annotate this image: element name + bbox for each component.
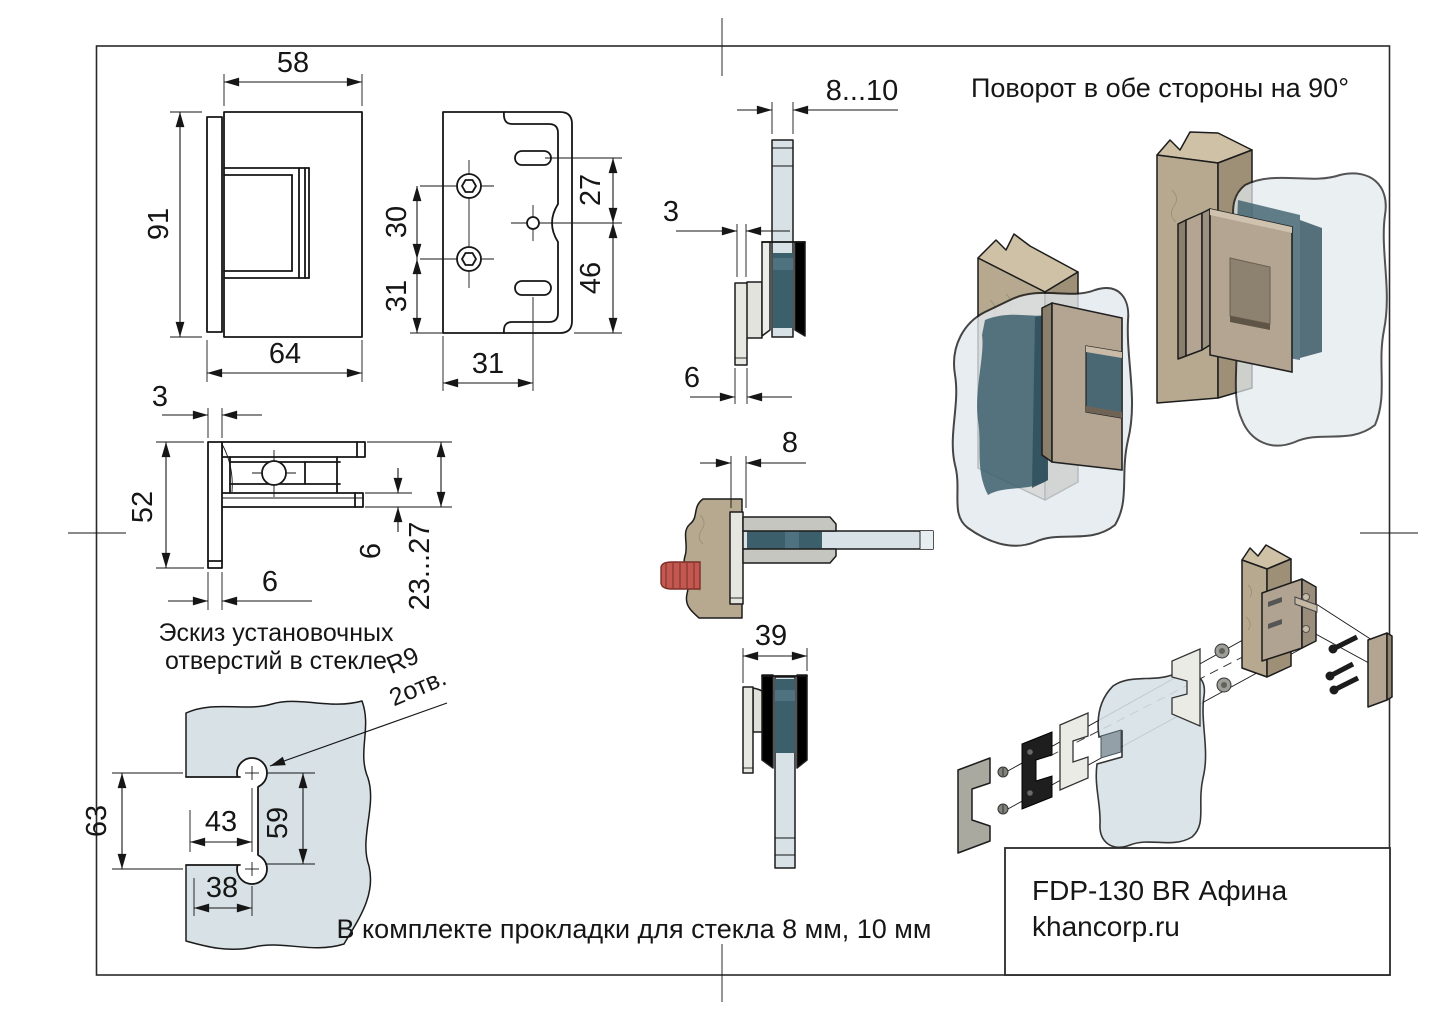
- title-website: khancorp.ru: [1032, 911, 1180, 942]
- drawing-sheet: 58 91 64 30: [0, 0, 1443, 1020]
- gasket-clear-1: [1060, 713, 1088, 790]
- wall-plate-edge: [735, 283, 747, 365]
- dim-top-plate-thickness: 6: [262, 566, 278, 598]
- dim-glass-edge-height: 63: [81, 805, 113, 837]
- dim-front-bottom-width: 64: [269, 338, 301, 370]
- dim-top-gap: 3: [152, 381, 168, 413]
- dim-front-top-width: 58: [277, 47, 309, 79]
- center-pin-hole: [527, 217, 539, 229]
- dim-top-clamp-range: 23...27: [404, 522, 436, 611]
- screw-hole-bottom: [457, 247, 481, 271]
- view-glass-holes: R9 2отв. 63 43 59 38: [81, 642, 450, 950]
- cover-plate-left: [958, 758, 990, 853]
- sketch-caption-line1: Эскиз установочных: [159, 619, 394, 647]
- screw-hole-top: [457, 174, 481, 198]
- dim-section-inset: 8: [782, 427, 798, 459]
- view-front-hinge: 58 91 64: [143, 47, 362, 382]
- view-top-clamp: 3 52 6 6 23...27: [127, 381, 452, 610]
- drawing-canvas: 58 91 64 30: [0, 0, 1443, 1020]
- mounting-screws-black: [1326, 637, 1359, 695]
- dim-glass-hole-spacing-y: 59: [262, 807, 294, 839]
- dim-width-total: 39: [755, 620, 787, 652]
- dim-plate-hole-to-bottom: 31: [381, 280, 413, 312]
- view-side-glass-clamp: 8...10 3 6: [663, 75, 898, 404]
- dim-plate-bottom-offset: 31: [472, 348, 504, 380]
- sketch-caption: Эскиз установочных отверстий в стекле: [159, 619, 394, 675]
- rotation-note: Поворот в обе стороны на 90°: [971, 73, 1349, 103]
- pivot-pin: [262, 461, 286, 485]
- dim-side-plate-thickness: 6: [684, 362, 700, 394]
- dim-glass-hole-offset-x: 43: [205, 806, 237, 838]
- dim-front-height: 91: [143, 208, 175, 240]
- cover-plate-right: [1368, 633, 1387, 707]
- view-width-39: 39: [743, 620, 807, 868]
- sketch-caption-line2: отверстий в стекле: [165, 647, 387, 675]
- anchor-screw-red: [661, 562, 700, 589]
- hinge-side: [1042, 303, 1052, 462]
- view-wall-section: 8: [661, 427, 933, 618]
- render-3d-closed: [953, 234, 1132, 546]
- kit-note: В комплекте прокладки для стекла 8 мм, 1…: [337, 914, 932, 944]
- render-exploded: [958, 545, 1392, 853]
- dim-side-gap: 3: [663, 196, 679, 228]
- title-model: FDP-130 BR Афина: [1032, 875, 1288, 906]
- title-block: FDP-130 BR Афина khancorp.ru: [1005, 848, 1390, 975]
- dim-plate-hole-spacing: 30: [381, 206, 413, 238]
- dim-plate-center-to-bottom: 46: [575, 262, 607, 294]
- view-mounting-plate: 30 31 27 46 31: [381, 112, 622, 391]
- dim-glass-thickness: 8...10: [826, 75, 899, 107]
- dim-top-depth: 52: [127, 491, 159, 523]
- gasket-section: [747, 531, 822, 549]
- dim-glass-lower-offset-x: 38: [206, 872, 238, 904]
- dim-top-jaw-thickness: 6: [355, 543, 387, 559]
- dim-plate-slot-to-center: 27: [575, 174, 607, 206]
- rubber-gasket-black: [1022, 732, 1052, 809]
- render-3d-open: [1157, 132, 1387, 446]
